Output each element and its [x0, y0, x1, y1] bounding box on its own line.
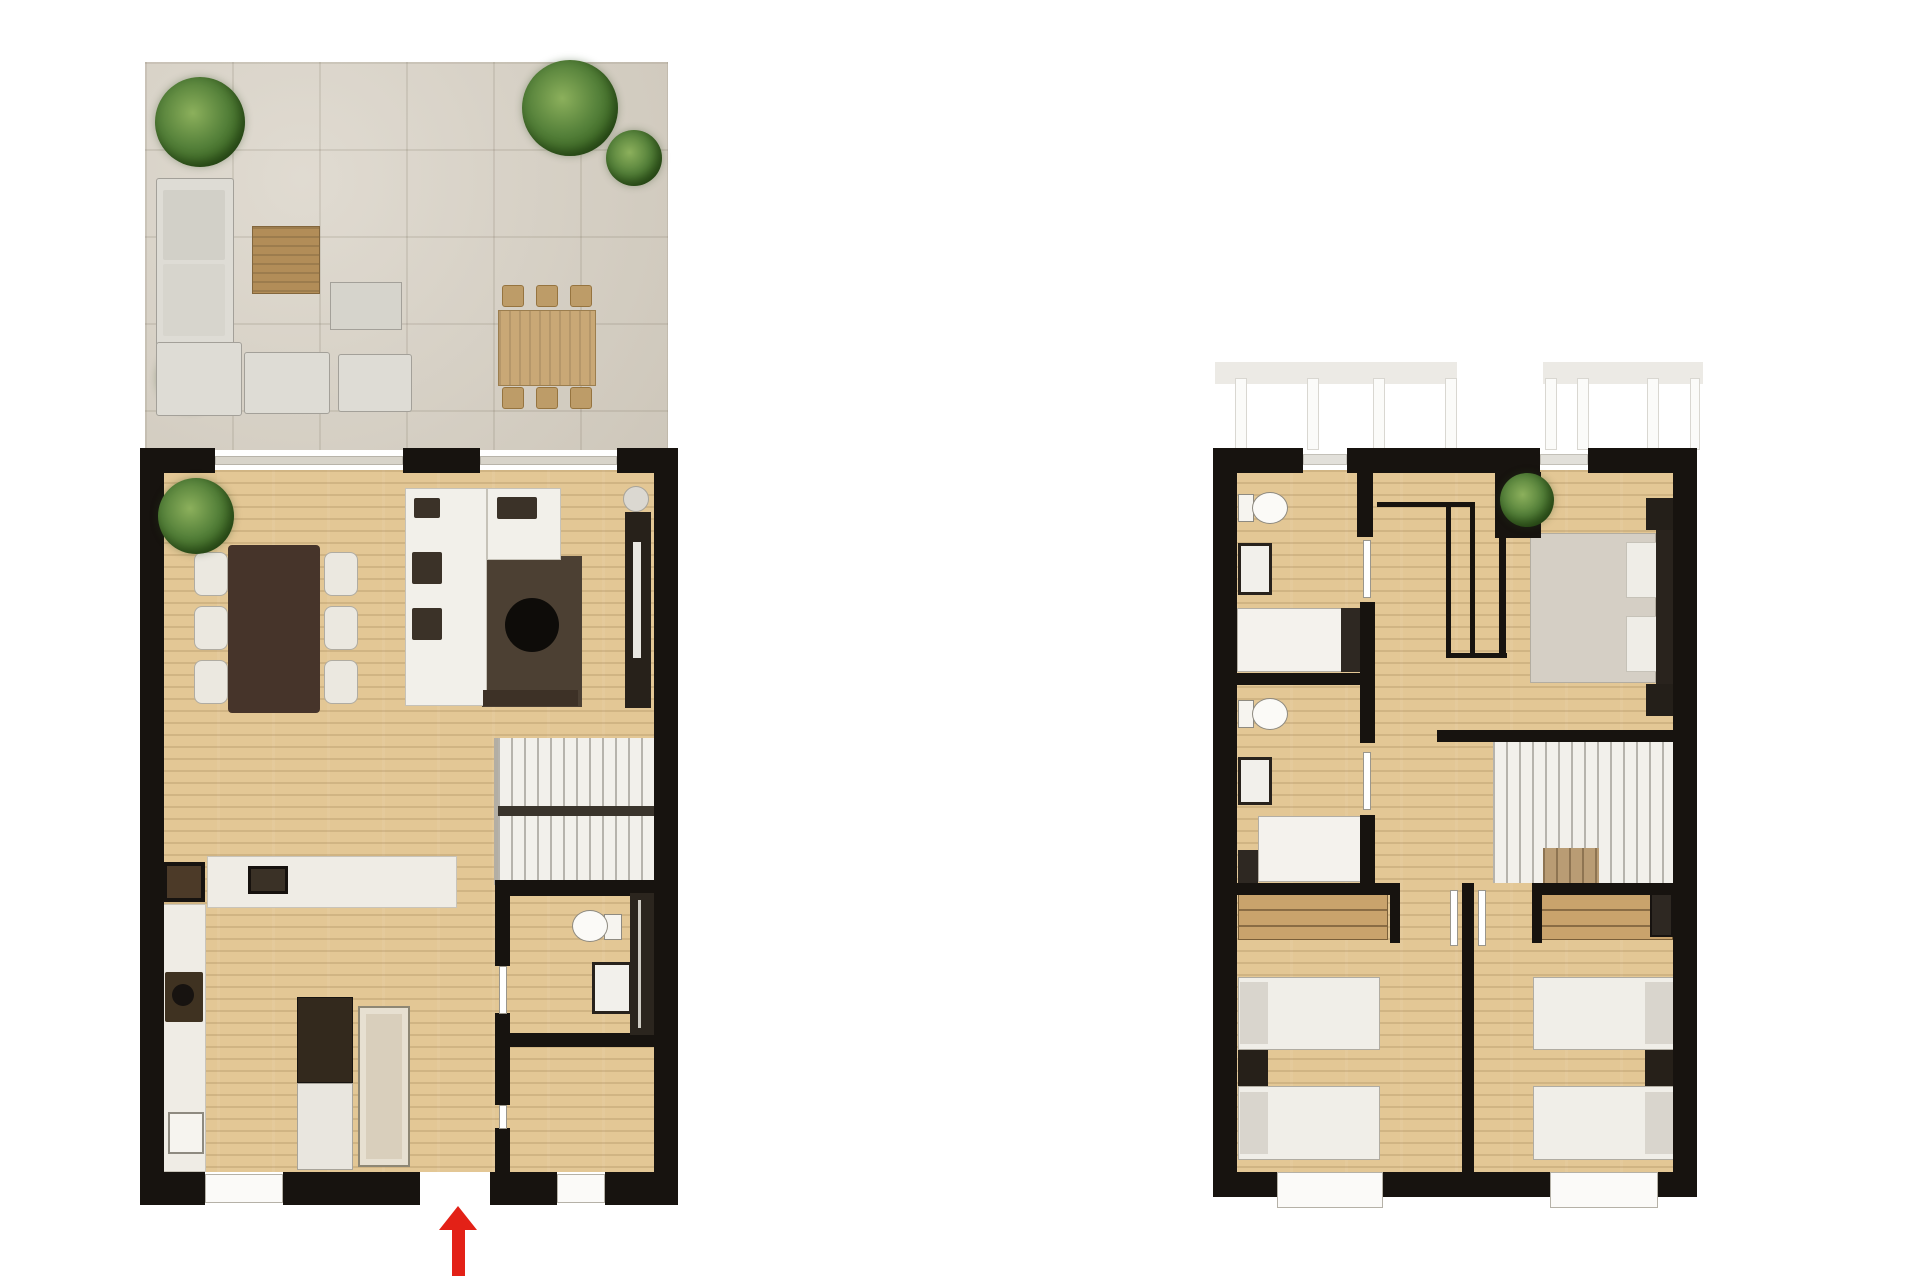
bed-left-a-pillow	[1240, 982, 1268, 1044]
gf-window-2	[557, 1174, 605, 1203]
sofa-vertical	[405, 488, 487, 706]
tall-unit-bottom	[297, 1083, 353, 1170]
ff-wall-bottom-1	[1213, 1172, 1277, 1197]
ff-wall-bottom-2	[1383, 1172, 1550, 1197]
ff-washbasin-2	[1238, 757, 1272, 805]
stairs-ground-landing	[498, 806, 655, 816]
ff-bath-2-door	[1363, 752, 1371, 810]
dining-chair-5	[324, 606, 358, 650]
ff-hall-wall-3	[1360, 815, 1375, 883]
kitchen-island	[207, 856, 457, 908]
terrace-plant-3	[606, 130, 662, 186]
gf-wall-bottom-3	[490, 1172, 557, 1205]
ff-wall-top-2	[1347, 448, 1540, 473]
outdoor-armchair	[338, 354, 412, 412]
master-pillow-1	[1626, 542, 1658, 598]
ff-bedleft-top-wall	[1213, 883, 1400, 895]
balcony-post-3	[1373, 378, 1385, 450]
master-pillow-2	[1626, 616, 1658, 672]
sofa-cushion-1	[414, 498, 440, 518]
counter-sink	[168, 1112, 204, 1154]
terrace-plant-1	[155, 77, 245, 167]
outdoor-side-table	[330, 282, 402, 330]
gf-wall-bottom-4	[605, 1172, 678, 1205]
gf-washbasin	[592, 962, 632, 1014]
master-nightstand-2	[1646, 684, 1674, 716]
ff-balcony-door-1	[1303, 454, 1347, 465]
ff-bedright-stub	[1532, 890, 1542, 943]
bathtub-2-cabinet	[1238, 850, 1258, 883]
hob-left	[163, 862, 205, 902]
ff-washbasin-1	[1238, 543, 1272, 595]
speaker	[623, 486, 649, 512]
outdoor-chair-3	[570, 285, 592, 307]
master-nightstand-1	[1646, 498, 1674, 530]
gf-window-1	[205, 1174, 283, 1203]
ff-wall-left	[1213, 448, 1237, 1197]
gf-slider-glass-1	[215, 456, 403, 465]
dining-chair-1	[194, 552, 228, 596]
dining-table	[228, 545, 320, 713]
balcony-post-2	[1307, 378, 1319, 450]
ff-bath-1-door	[1363, 540, 1371, 598]
balcony-post-7	[1647, 378, 1659, 450]
ff-balcony-door-2	[1540, 454, 1588, 465]
stairs-first-wood-treads	[1543, 848, 1599, 883]
ff-window-1	[1277, 1172, 1383, 1208]
stairs-ground-edge	[494, 738, 498, 885]
ff-bedroom-left-door	[1450, 890, 1458, 946]
gf-wall-left	[140, 448, 164, 1205]
ff-bedroom-right-door	[1478, 890, 1486, 946]
gf-wall-top-2	[403, 448, 480, 473]
bed-right-b-pillow	[1645, 1092, 1673, 1154]
gf-toilet-bowl	[572, 910, 608, 942]
ff-central-wall	[1462, 883, 1474, 1172]
gf-bath-wall-left-1	[495, 896, 510, 966]
balcony-band-1	[1215, 362, 1457, 384]
ff-bedright-top-wall	[1532, 883, 1697, 895]
entry-wardrobe	[358, 1006, 410, 1167]
balcony-post-4	[1445, 378, 1457, 450]
wall-cabinet-right	[1650, 890, 1673, 937]
stairwell-rail-1	[1377, 502, 1474, 507]
island-sink	[248, 866, 288, 894]
bathtub-2	[1258, 816, 1364, 882]
gf-bath-wall-bottom	[508, 1033, 655, 1047]
outdoor-chair-4	[502, 387, 524, 409]
sideboard	[483, 690, 578, 706]
dining-chair-3	[194, 660, 228, 704]
ff-bedleft-stub	[1390, 890, 1400, 943]
dining-chair-6	[324, 660, 358, 704]
tv-screen	[633, 542, 641, 658]
gf-wall-bottom-2	[283, 1172, 420, 1205]
outdoor-chair-2	[536, 285, 558, 307]
gf-wall-bottom-1	[140, 1172, 205, 1205]
outdoor-sofa-cushion-1	[163, 190, 225, 260]
balcony-post-1	[1235, 378, 1247, 450]
gf-bath-wall-left-3	[495, 1128, 510, 1172]
outdoor-chair-6	[570, 387, 592, 409]
ff-hall-plant	[1500, 473, 1554, 527]
sofa-cushion-3	[412, 608, 442, 640]
gf-shower	[630, 893, 654, 1035]
ff-toilet-2-bowl	[1252, 698, 1288, 730]
ff-hall-wall-1	[1357, 473, 1373, 537]
sofa-cushion-2	[412, 552, 442, 584]
nightstand-right-room	[1645, 1050, 1675, 1086]
gf-wall-right	[654, 448, 678, 1205]
floorplan-image	[0, 0, 1920, 1280]
outdoor-chair-1	[502, 285, 524, 307]
outdoor-chair-5	[536, 387, 558, 409]
master-headboard	[1656, 518, 1674, 700]
bathtub-1-end	[1341, 608, 1361, 672]
gf-bath-door	[499, 966, 507, 1014]
ff-window-2	[1550, 1172, 1658, 1208]
tall-unit-top	[297, 997, 353, 1083]
gf-bath-wall-left-2	[495, 1013, 510, 1105]
outdoor-sofa-cushion-2	[163, 264, 225, 336]
ff-toilet-1-bowl	[1252, 492, 1288, 524]
outdoor-lounge-chair	[244, 352, 330, 414]
bed-left-b-pillow	[1240, 1092, 1268, 1154]
desk-left-room	[1238, 892, 1388, 940]
gf-slider-glass-2	[480, 456, 617, 465]
ff-wall-right	[1673, 448, 1697, 1197]
balcony-post-6	[1577, 378, 1589, 450]
bed-right-a-pillow	[1645, 982, 1673, 1044]
dining-chair-4	[324, 552, 358, 596]
gf-hall-door	[499, 1105, 507, 1129]
stairwell-rail-3	[1446, 505, 1451, 658]
ff-bath-divider-wall	[1235, 673, 1375, 685]
entry-arrow-head	[439, 1206, 477, 1230]
coffee-table	[505, 598, 559, 652]
balcony-band-2	[1543, 362, 1703, 384]
dining-chair-2	[194, 606, 228, 650]
outdoor-coffee-table	[252, 226, 320, 294]
outdoor-sofa-corner	[156, 342, 242, 416]
ff-stairs-top-wall	[1437, 730, 1697, 742]
ff-wall-bottom-3	[1658, 1172, 1697, 1197]
cooktop-burner	[172, 984, 194, 1006]
stairwell-rail-2	[1470, 502, 1475, 658]
entry-arrow-shaft	[452, 1230, 465, 1276]
nightstand-left-room	[1238, 1050, 1268, 1086]
stairwell-rail-5	[1446, 653, 1507, 658]
terrace-plant-2	[522, 60, 618, 156]
sofa-cushion-4	[497, 497, 537, 519]
outdoor-dining-table	[498, 310, 596, 386]
balcony-post-5	[1545, 378, 1557, 450]
living-plant	[158, 478, 234, 554]
gf-shower-glass	[638, 900, 641, 1028]
balcony-post-8	[1690, 378, 1700, 450]
